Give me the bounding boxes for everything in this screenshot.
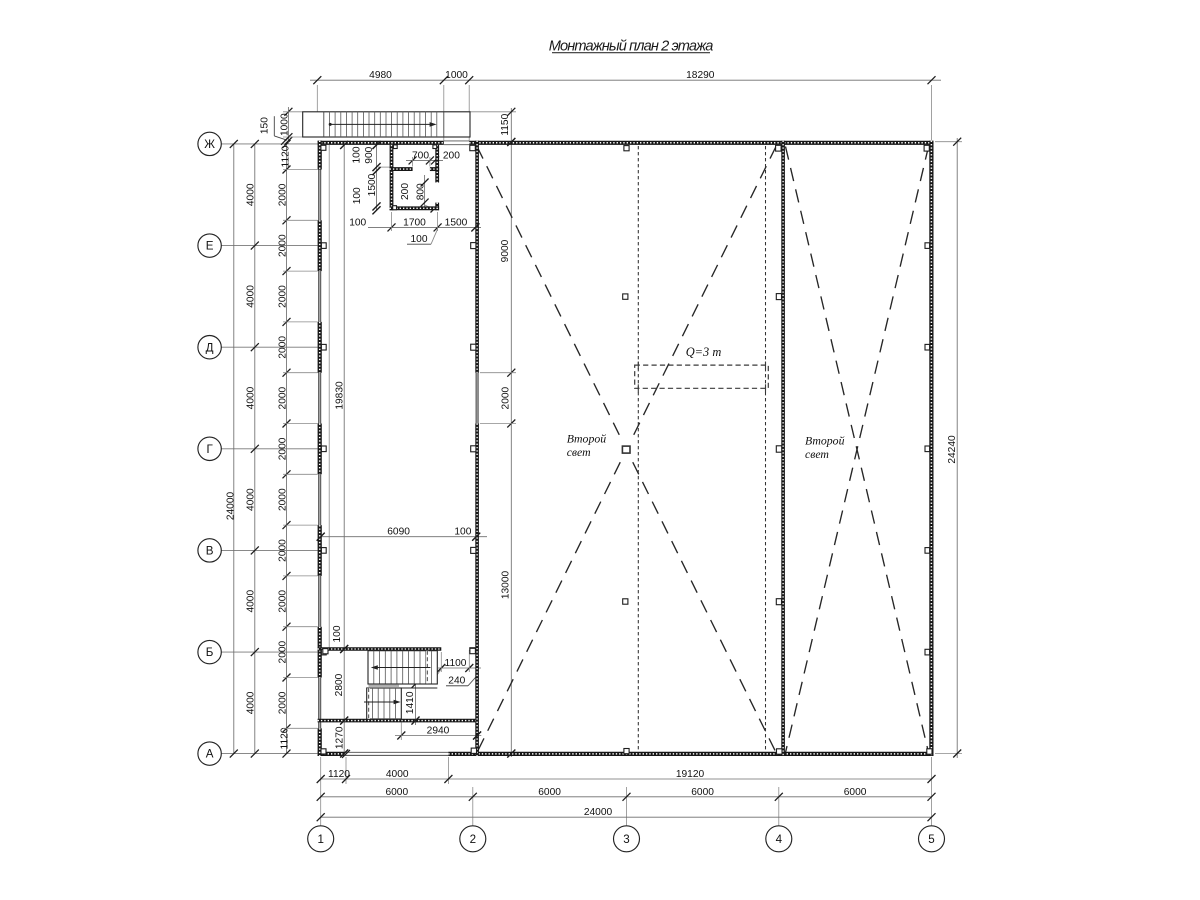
svg-text:24240: 24240 [947,435,958,464]
svg-text:4000: 4000 [246,691,257,714]
svg-text:100: 100 [349,217,366,228]
svg-text:6000: 6000 [691,787,714,798]
svg-text:6000: 6000 [844,787,867,798]
svg-text:100: 100 [332,625,343,642]
svg-text:2: 2 [470,833,476,846]
svg-text:2000: 2000 [500,386,511,409]
svg-text:2000: 2000 [277,590,288,613]
svg-text:1: 1 [317,833,323,846]
svg-text:4000: 4000 [246,386,257,409]
svg-text:1270: 1270 [335,726,346,749]
svg-text:Q=3 т: Q=3 т [686,345,722,359]
svg-text:2000: 2000 [277,488,288,511]
svg-text:19120: 19120 [676,769,705,780]
svg-text:2000: 2000 [277,386,288,409]
svg-text:А: А [206,748,214,761]
svg-text:1000: 1000 [445,70,468,81]
svg-text:200: 200 [400,183,411,200]
svg-text:Второй: Второй [567,431,607,445]
svg-text:Монтажный план 2 этажа: Монтажный план 2 этажа [549,38,713,54]
svg-text:4000: 4000 [386,769,409,780]
svg-text:700: 700 [412,150,429,161]
svg-text:2000: 2000 [277,234,288,257]
svg-text:свет: свет [567,445,591,459]
svg-text:100: 100 [454,527,471,538]
svg-text:Б: Б [206,646,214,659]
svg-text:2000: 2000 [277,183,288,206]
svg-text:1410: 1410 [405,691,416,714]
svg-text:100: 100 [411,234,428,245]
svg-text:6000: 6000 [385,787,408,798]
svg-text:6000: 6000 [538,787,561,798]
svg-text:2940: 2940 [427,726,450,737]
svg-text:свет: свет [805,447,829,461]
svg-text:5: 5 [928,833,934,846]
svg-text:150: 150 [260,117,271,134]
svg-text:800: 800 [415,183,426,200]
svg-text:2000: 2000 [277,691,288,714]
svg-text:Ж: Ж [204,138,215,151]
svg-text:4000: 4000 [246,183,257,206]
svg-text:2000: 2000 [277,437,288,460]
svg-text:100: 100 [352,146,363,163]
svg-text:1120: 1120 [328,769,350,780]
svg-text:4980: 4980 [369,70,392,81]
svg-text:240: 240 [448,676,465,687]
svg-text:4000: 4000 [246,488,257,511]
svg-text:200: 200 [443,150,460,161]
svg-text:Г: Г [206,443,213,456]
svg-text:4000: 4000 [246,285,257,308]
svg-text:4: 4 [776,833,783,846]
svg-text:2800: 2800 [334,673,345,696]
svg-text:1700: 1700 [403,217,426,228]
svg-text:Д: Д [206,341,214,354]
svg-text:2000: 2000 [277,336,288,359]
svg-text:3: 3 [623,833,629,846]
svg-text:24000: 24000 [584,807,613,818]
svg-text:2000: 2000 [277,539,288,562]
svg-text:6090: 6090 [387,527,410,538]
svg-text:18290: 18290 [686,70,715,81]
svg-text:19830: 19830 [335,381,346,410]
svg-text:2000: 2000 [277,285,288,308]
svg-text:1120: 1120 [280,145,291,167]
svg-text:Е: Е [206,240,214,253]
svg-text:1120: 1120 [280,727,291,749]
svg-text:100: 100 [352,187,363,204]
svg-text:4000: 4000 [246,590,257,613]
svg-text:24000: 24000 [225,492,236,521]
svg-text:1100: 1100 [445,658,467,669]
svg-text:Второй: Второй [805,434,845,448]
svg-text:1500: 1500 [445,217,468,228]
svg-text:9000: 9000 [500,239,511,262]
svg-text:1500: 1500 [367,173,378,196]
svg-text:13000: 13000 [501,571,512,600]
svg-text:1000: 1000 [279,113,290,136]
svg-text:1150: 1150 [500,113,511,135]
svg-text:2000: 2000 [277,640,288,663]
svg-text:В: В [206,545,214,558]
